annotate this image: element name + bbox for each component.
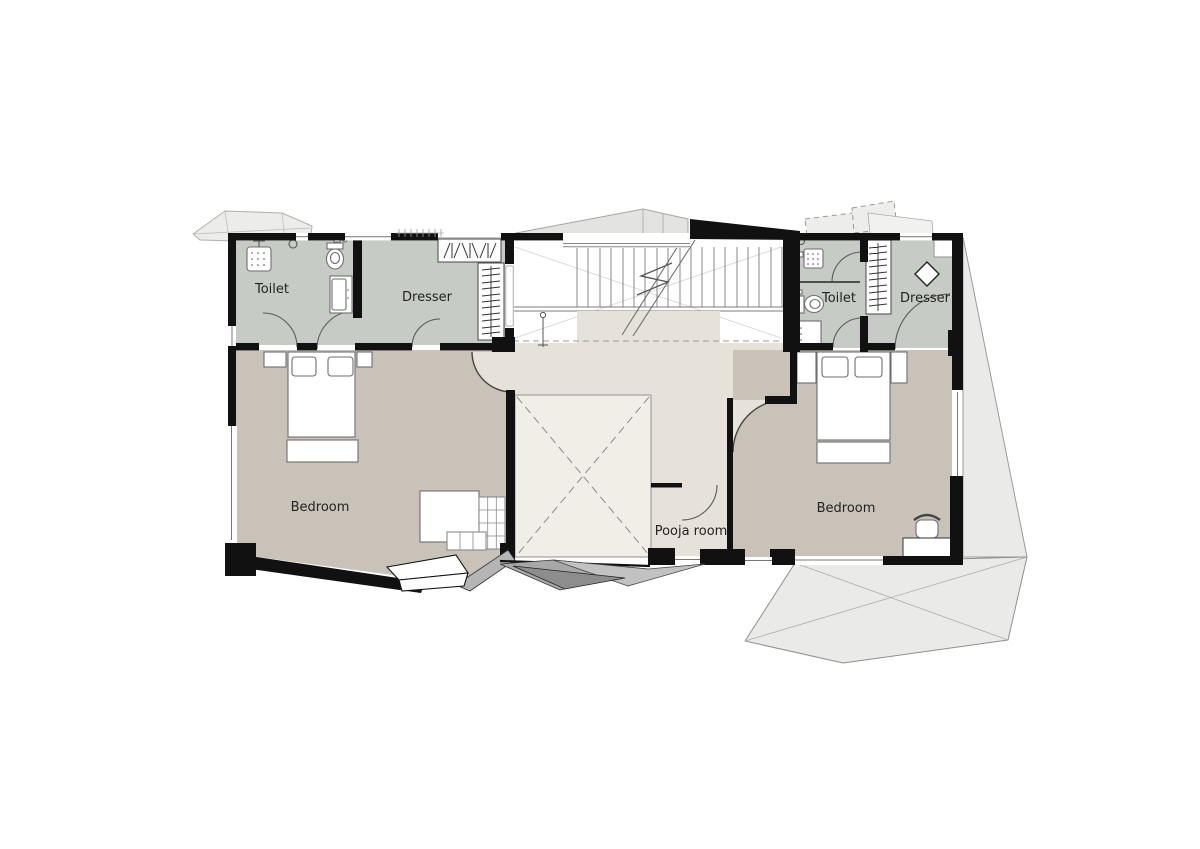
pergola-solid-tail [868,213,933,234]
bed-left-bench [287,440,358,462]
floor-plan: Toilet Dresser Bedroom Pooja room Toilet… [0,0,1200,849]
sink-left [330,276,352,313]
roof-right-side [963,237,1027,557]
room-label-dresser-right: Dresser [900,291,951,306]
room-label-dresser-left: Dresser [402,290,453,305]
chair-seat [916,520,938,538]
bed-right-bench [817,442,890,463]
room-label-bedroom-left: Bedroom [291,500,350,515]
room-label-toilet-right: Toilet [821,291,856,306]
room-label-bedroom-right: Bedroom [817,501,876,516]
room-label-pooja: Pooja room [655,524,728,539]
closet-tall-right [866,240,891,314]
room-label-toilet-left: Toilet [254,282,289,297]
stair-understair-floor [577,311,720,345]
window-recess-right-dresser [934,240,953,257]
roof-bottom-right [745,557,1027,663]
floor-plan-page: Toilet Dresser Bedroom Pooja room Toilet… [0,0,1200,849]
desk-right [903,538,951,559]
closet-top-left [438,239,501,262]
void-skylight [515,395,651,557]
closet-tall-left [478,263,504,340]
sofa-set-left [420,491,505,550]
